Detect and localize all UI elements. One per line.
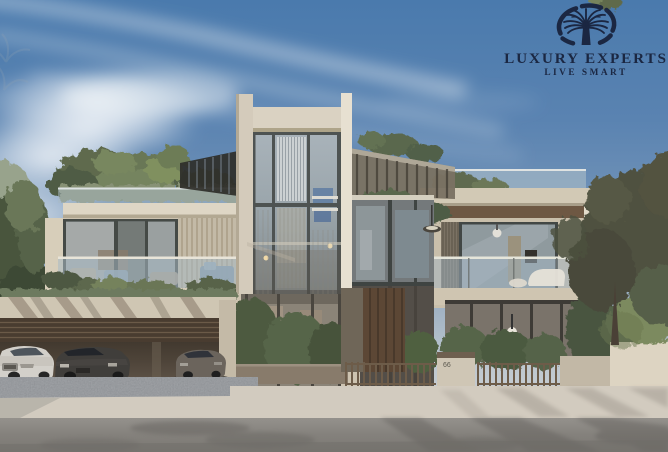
svg-text:66: 66 [443,362,451,369]
svg-text:LIVE SMART: LIVE SMART [544,68,627,78]
svg-text:LUXURY EXPERTS: LUXURY EXPERTS [504,50,668,67]
